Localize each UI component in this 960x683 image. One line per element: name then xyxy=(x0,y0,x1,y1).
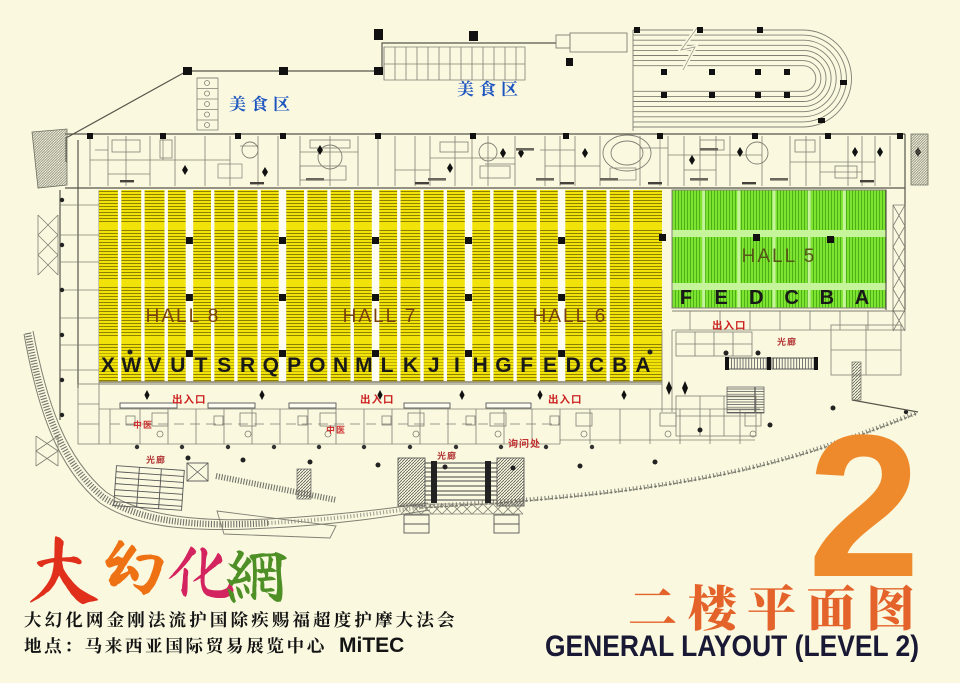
svg-text:D: D xyxy=(749,287,763,309)
svg-text:C: C xyxy=(589,354,604,377)
svg-text:O: O xyxy=(309,354,325,377)
svg-text:E: E xyxy=(543,354,557,377)
svg-text:W: W xyxy=(121,354,141,377)
svg-text:G: G xyxy=(495,354,511,377)
svg-text:A: A xyxy=(855,287,869,309)
svg-text:N: N xyxy=(333,354,348,377)
svg-text:S: S xyxy=(217,354,231,377)
svg-text:A: A xyxy=(635,354,650,377)
svg-text:K: K xyxy=(403,354,418,377)
svg-text:MiTEC: MiTEC xyxy=(339,634,404,657)
svg-text:HALL 7: HALL 7 xyxy=(343,306,418,327)
svg-text:L: L xyxy=(381,354,394,377)
svg-text:C: C xyxy=(784,287,798,309)
svg-text:H: H xyxy=(473,354,488,377)
svg-text:U: U xyxy=(170,354,185,377)
svg-text:GENERAL LAYOUT (LEVEL 2): GENERAL LAYOUT (LEVEL 2) xyxy=(545,630,919,663)
svg-text:2: 2 xyxy=(808,393,921,620)
svg-text:HALL 5: HALL 5 xyxy=(742,246,817,267)
svg-text:P: P xyxy=(287,354,301,377)
svg-text:J: J xyxy=(428,354,440,377)
svg-text:R: R xyxy=(240,354,255,377)
svg-text:F: F xyxy=(680,287,692,309)
svg-text:V: V xyxy=(147,354,161,377)
svg-text:HALL 6: HALL 6 xyxy=(533,306,608,327)
svg-text:Q: Q xyxy=(263,354,279,377)
svg-text:D: D xyxy=(566,354,581,377)
svg-text:HALL 8: HALL 8 xyxy=(146,306,221,327)
svg-text:T: T xyxy=(195,354,208,377)
svg-text:B: B xyxy=(820,287,834,309)
svg-text:M: M xyxy=(355,354,373,377)
svg-text:E: E xyxy=(715,287,728,309)
svg-text:B: B xyxy=(612,354,627,377)
svg-text:F: F xyxy=(520,354,533,377)
svg-text:I: I xyxy=(454,354,460,377)
svg-text:X: X xyxy=(101,354,115,377)
